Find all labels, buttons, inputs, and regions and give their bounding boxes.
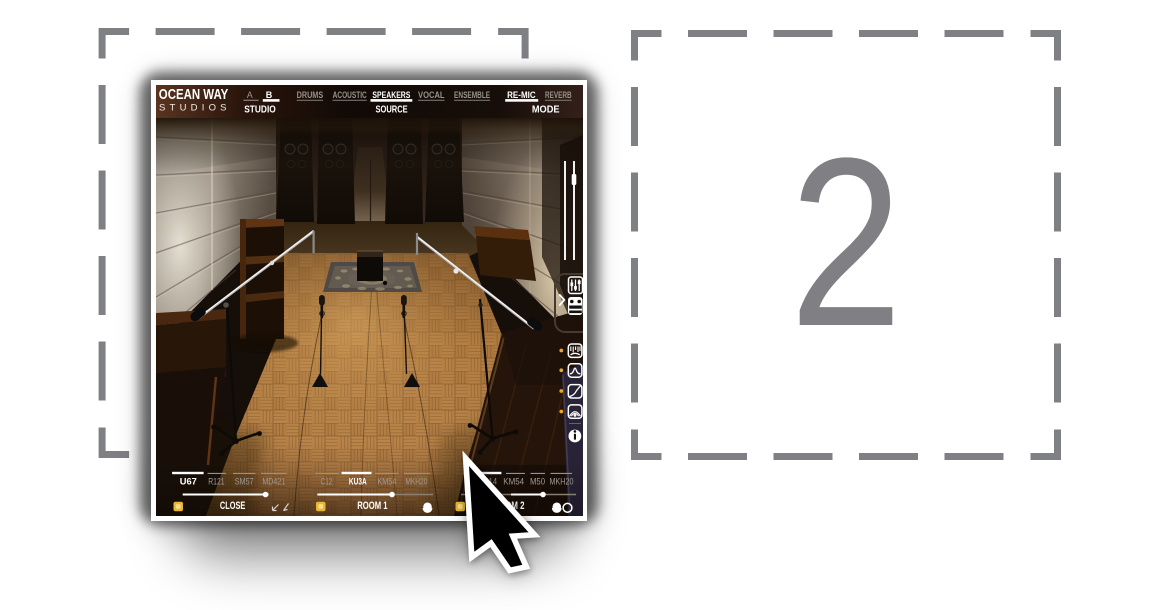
svg-text:VOCAL: VOCAL <box>418 89 445 99</box>
svg-text:A: A <box>246 89 252 99</box>
svg-text:MODE: MODE <box>531 104 559 115</box>
svg-text:RE-MIC: RE-MIC <box>507 89 536 99</box>
svg-text:SM57: SM57 <box>234 476 253 486</box>
svg-text:SPEAKERS: SPEAKERS <box>372 89 410 99</box>
svg-text:KU3A: KU3A <box>348 476 366 486</box>
svg-text:REVERB: REVERB <box>545 89 572 99</box>
svg-text:2: 2 <box>790 108 903 376</box>
svg-text:ROOM 1: ROOM 1 <box>357 500 387 512</box>
svg-text:ENSEMBLE: ENSEMBLE <box>454 89 490 99</box>
svg-text:B: B <box>265 89 272 99</box>
svg-text:DRUMS: DRUMS <box>296 89 323 99</box>
svg-text:STUDIO: STUDIO <box>244 104 276 115</box>
svg-text:SOURCE: SOURCE <box>375 104 407 115</box>
svg-text:OCEAN WAY: OCEAN WAY <box>158 87 228 103</box>
svg-text:ACOUSTIC: ACOUSTIC <box>332 89 366 99</box>
svg-text:R121: R121 <box>208 476 224 486</box>
svg-text:MD421: MD421 <box>262 476 285 486</box>
svg-text:C12: C12 <box>320 476 332 486</box>
svg-text:KM54: KM54 <box>377 476 396 486</box>
svg-text:CLOSE: CLOSE <box>219 500 244 512</box>
svg-text:U67: U67 <box>179 476 196 486</box>
svg-text:MKH20: MKH20 <box>405 476 427 486</box>
